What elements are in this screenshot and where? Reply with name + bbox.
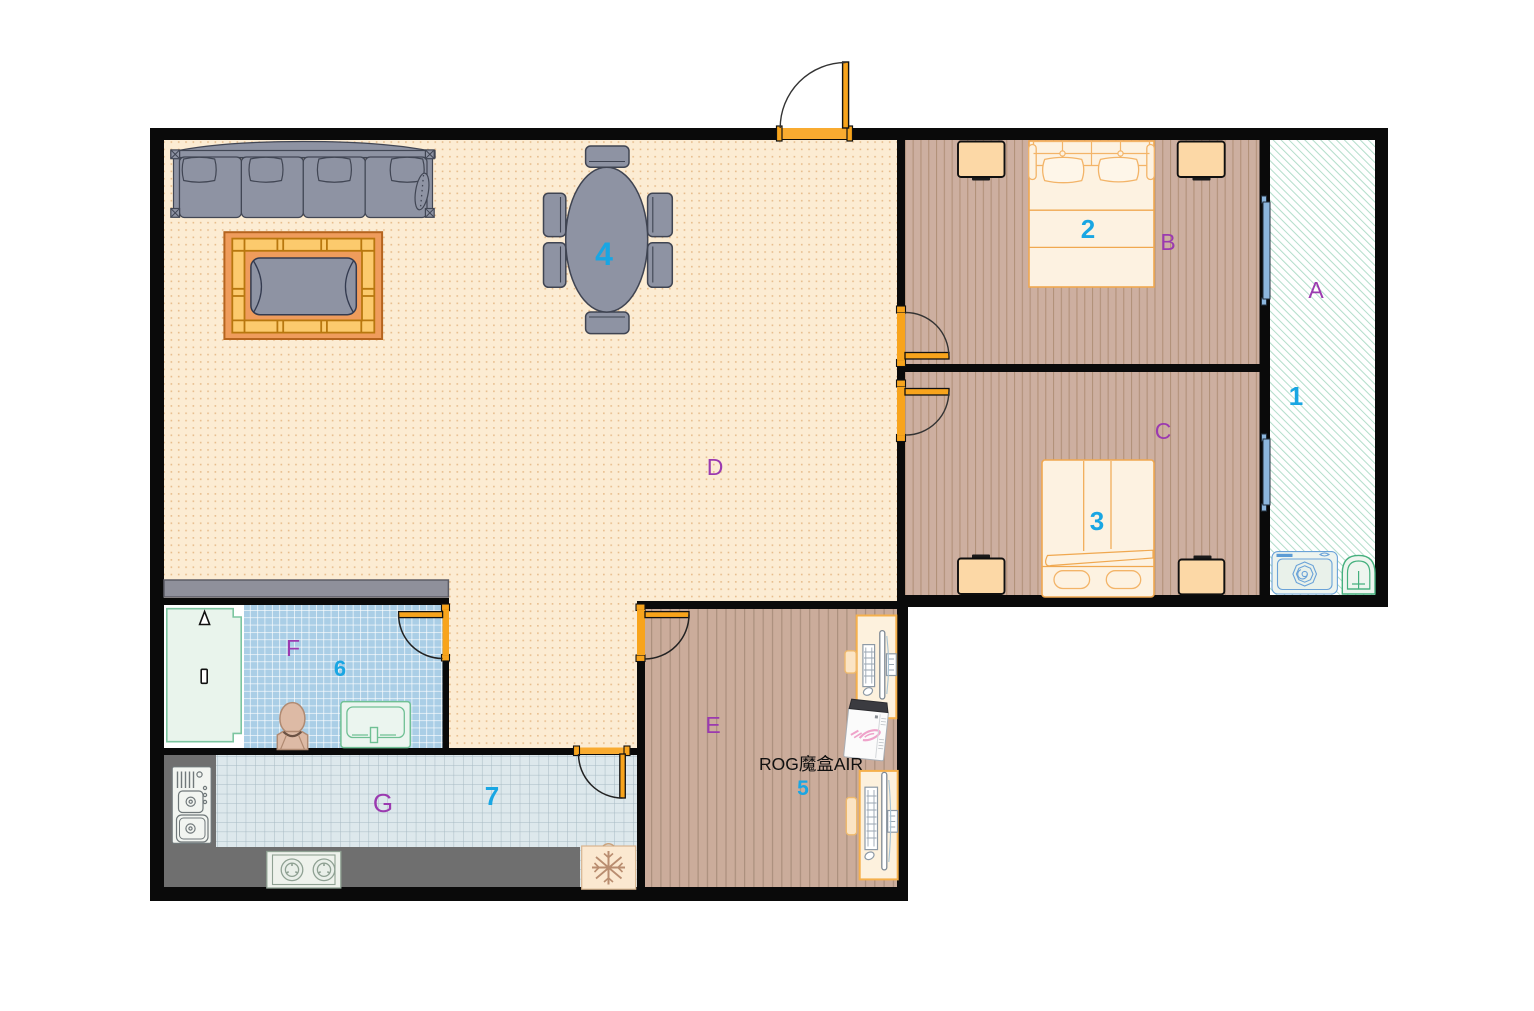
svg-text:A: A bbox=[1308, 277, 1324, 303]
svg-text:G: G bbox=[373, 788, 393, 818]
svg-text:5: 5 bbox=[797, 777, 809, 800]
svg-text:7: 7 bbox=[485, 781, 499, 811]
svg-text:B: B bbox=[1160, 229, 1175, 255]
svg-text:3: 3 bbox=[1090, 506, 1104, 536]
svg-text:D: D bbox=[707, 454, 724, 480]
svg-text:6: 6 bbox=[334, 656, 346, 681]
svg-text:4: 4 bbox=[595, 236, 613, 272]
svg-text:1: 1 bbox=[1289, 381, 1303, 411]
svg-text:ROG魔盒AIR: ROG魔盒AIR bbox=[759, 754, 863, 774]
svg-text:F: F bbox=[286, 635, 300, 661]
svg-text:C: C bbox=[1155, 418, 1172, 444]
svg-text:E: E bbox=[705, 712, 720, 738]
svg-text:2: 2 bbox=[1081, 214, 1095, 244]
